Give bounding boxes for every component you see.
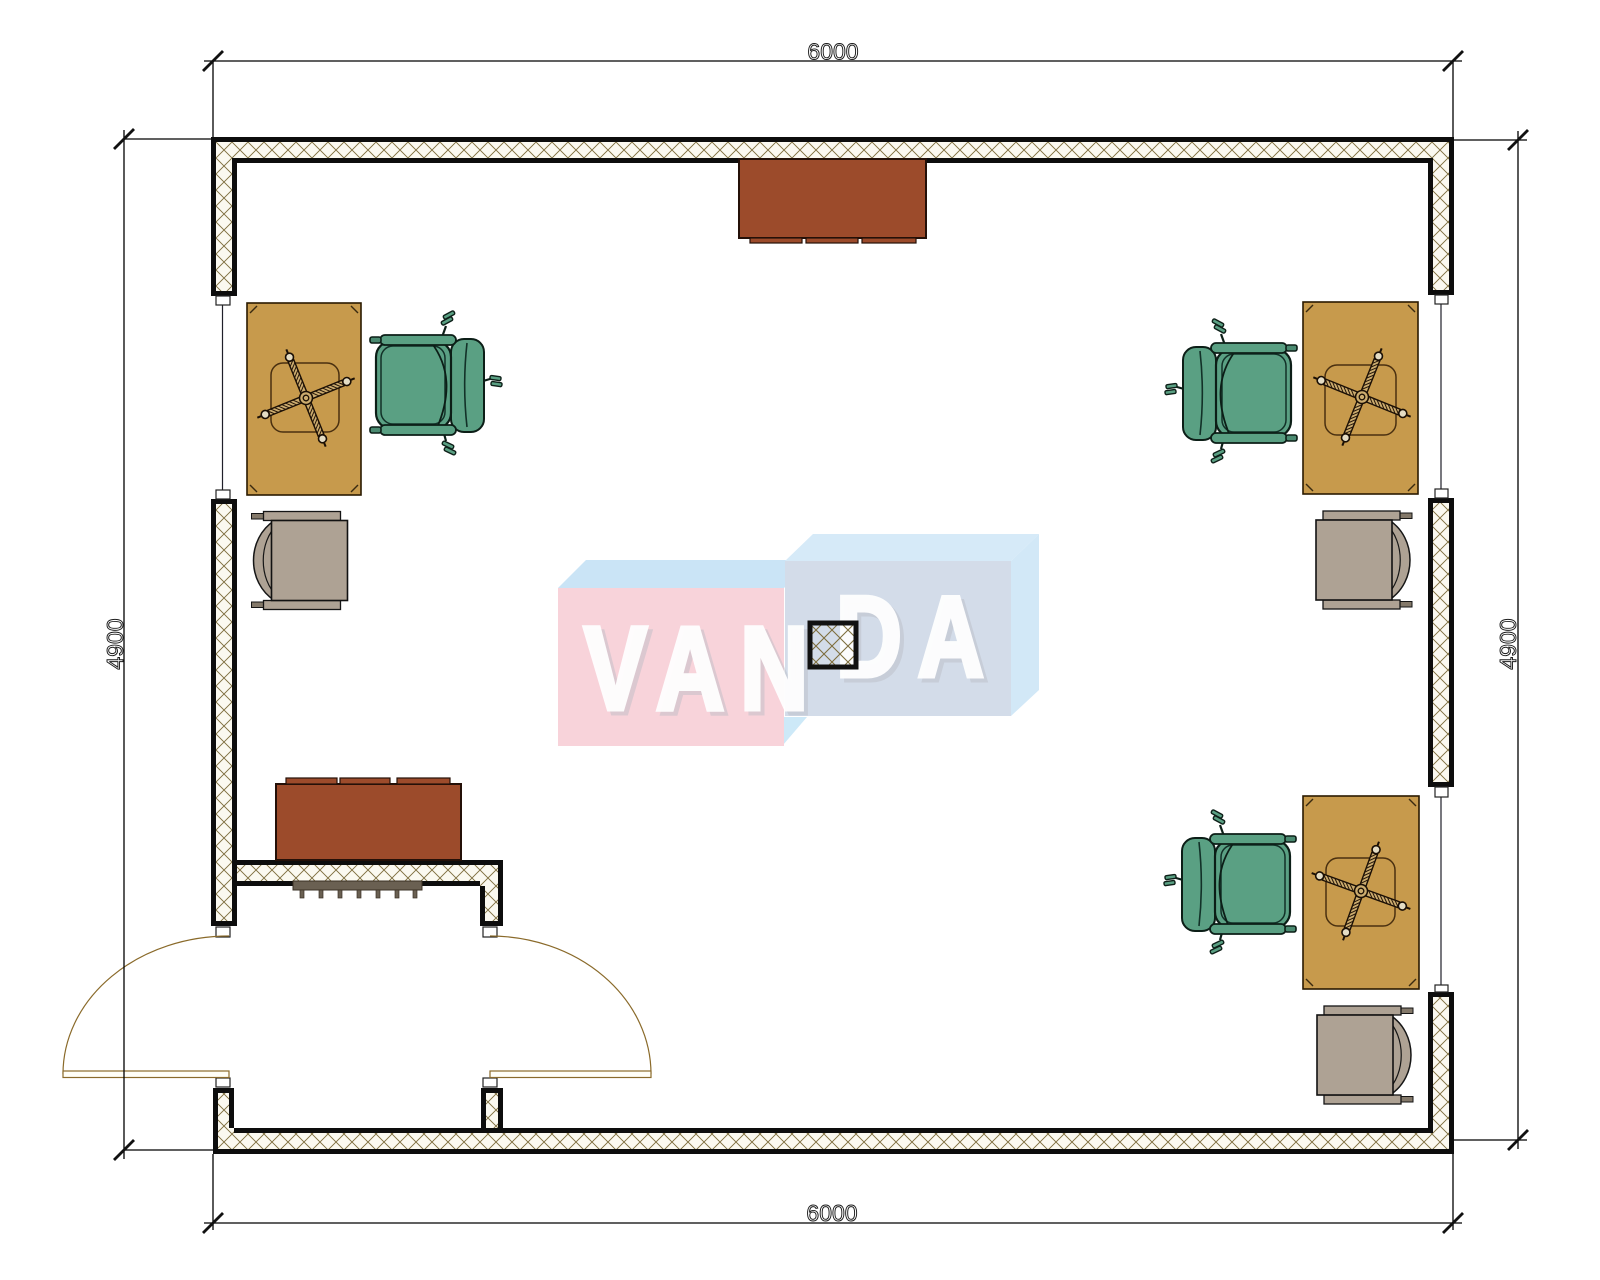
svg-text:6000: 6000 xyxy=(807,39,858,65)
svg-text:4900: 4900 xyxy=(1495,618,1521,669)
svg-text:DA: DA xyxy=(836,573,1000,700)
svg-text:6000: 6000 xyxy=(806,1200,857,1226)
svg-text:4900: 4900 xyxy=(102,618,128,669)
svg-text:VAN: VAN xyxy=(584,602,824,735)
